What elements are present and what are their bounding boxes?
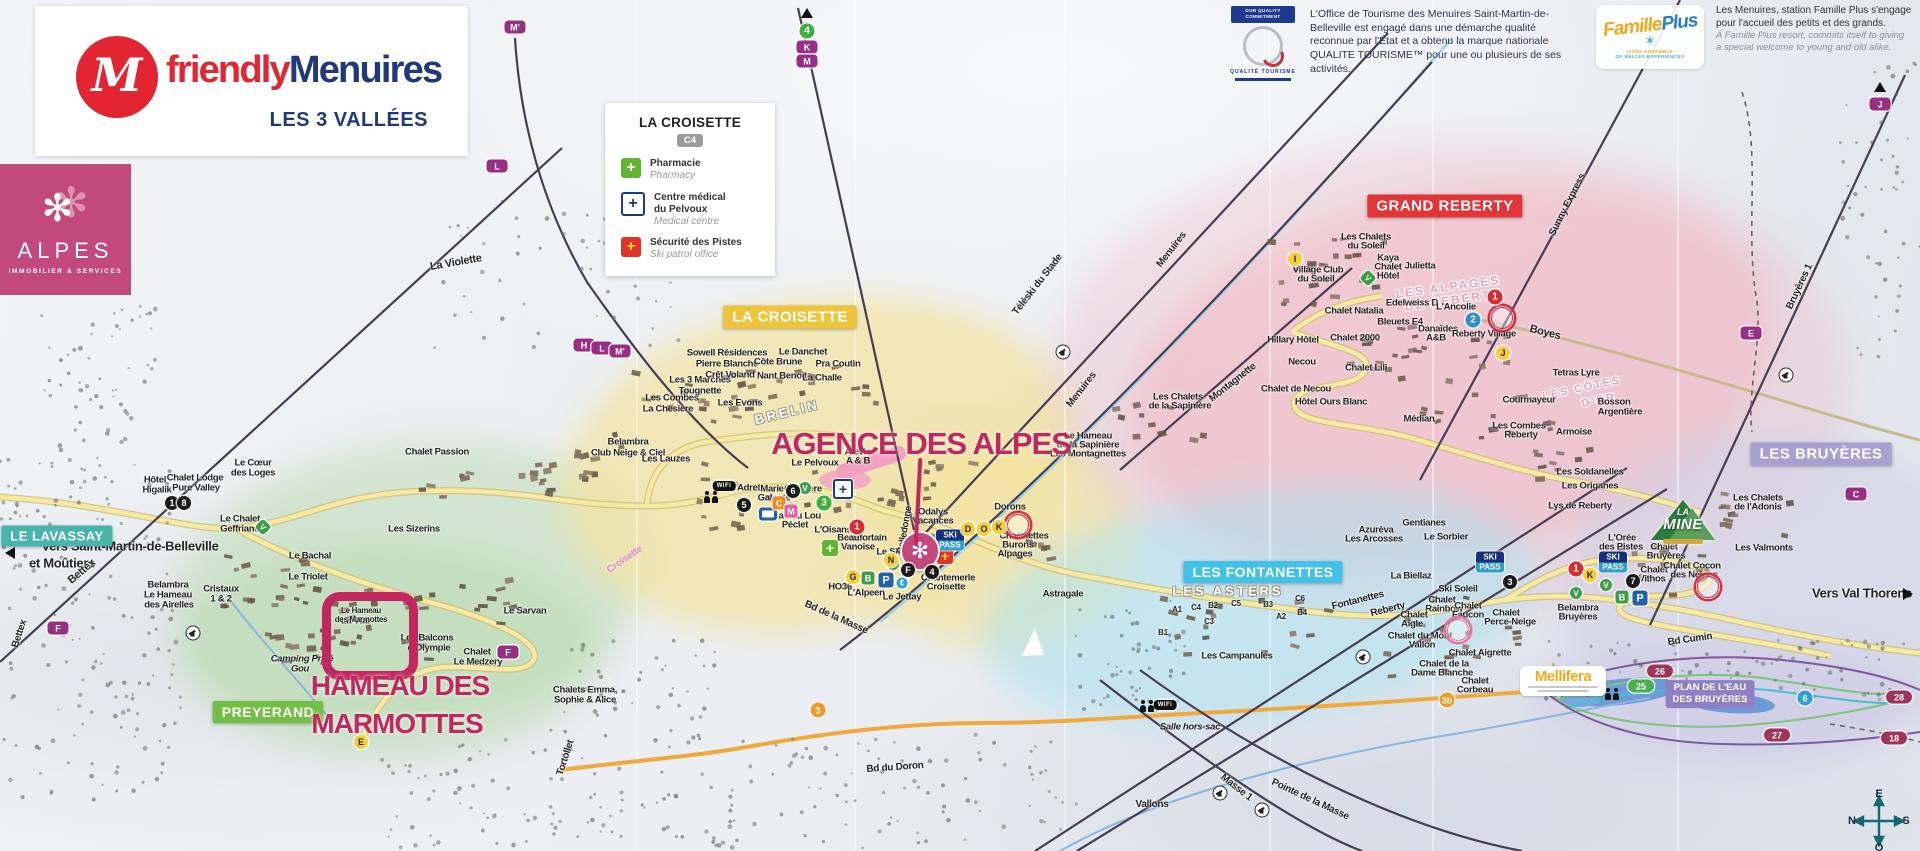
qualite-tourisme-block: OUR QUALITY COMMITMENT QUALITÉ TOURISME …	[1228, 6, 1580, 81]
pharm-icon: +	[822, 540, 838, 556]
map-label: Les Sizerins	[388, 524, 440, 534]
map-label: Tetras Lyre	[1553, 368, 1600, 378]
gond-icon	[1255, 803, 1270, 818]
map-label: Chalet Aigrette	[1449, 648, 1512, 658]
menuires-m-icon: M	[76, 36, 158, 118]
gond-icon	[1356, 650, 1371, 665]
map-label: C4	[1191, 604, 1201, 612]
triu-icon	[801, 8, 813, 18]
map-label: Péclet	[782, 520, 808, 530]
brand-tagline: LES 3 VALLÉES	[270, 109, 428, 132]
map-label: Vanoise	[841, 542, 875, 552]
map-label: des Airelles	[144, 600, 193, 610]
plan-de-leau-label: PLAN DE L'EAU DES BRUYÈRES	[1666, 680, 1755, 708]
map-label: Crêt Voland	[705, 370, 754, 380]
map-label: C6	[1295, 595, 1305, 603]
map-label: Chalet Passion	[405, 447, 469, 457]
tril-icon	[5, 547, 15, 559]
map-label: Vers Val Thorens	[1812, 587, 1912, 600]
map-label: des Loges	[231, 468, 275, 478]
legend-item-label-en: Medical centre	[654, 216, 726, 229]
la-mine-banner	[1663, 539, 1703, 544]
bgrn-icon: B	[862, 572, 875, 585]
callout-hameau-des: HAMEAU DES	[311, 670, 489, 702]
map-label: Hôtel	[1377, 271, 1399, 281]
route-badge-25: 25	[1628, 680, 1654, 693]
map-label: Necou	[1288, 357, 1316, 367]
route-badge-3: 3	[1503, 575, 1517, 589]
map-label: Le Medzery	[454, 657, 503, 667]
medcross-icon: +	[833, 479, 853, 499]
map-label: Bruyères	[1559, 612, 1598, 622]
route-badge-28: 28	[1886, 691, 1912, 704]
vgrn-icon: V	[1570, 587, 1582, 599]
route-badge-2: 2	[1466, 313, 1481, 328]
pharmacy-cross: +	[621, 158, 641, 178]
map-label: Chalet de Necou	[1261, 384, 1331, 394]
map-label: Argentière	[1598, 407, 1643, 417]
trir-icon	[1903, 588, 1913, 600]
route-badge-4: 4	[800, 24, 815, 39]
resort-map-canvas[interactable]: PLAN DE L'EAU DES BRUYÈRES LAMINE Mellif…	[0, 0, 1920, 851]
route-badge-3: 3	[817, 496, 832, 511]
map-label: Geffriand	[220, 524, 260, 534]
lift-badge-m: M	[797, 55, 818, 68]
route-badge-6: 6	[786, 484, 800, 498]
route-badge-1: 1	[1569, 562, 1584, 577]
region-label-grand-reberty: GRAND REBERTY	[1367, 195, 1522, 218]
mellifera-title: Mellifera	[1528, 669, 1598, 684]
skipass-icon: SKIPASS	[1599, 552, 1627, 573]
bgrn-icon: B	[1616, 591, 1629, 604]
lift-badge-m': M'	[505, 21, 526, 34]
legend-item-label-en: Pharmacy	[650, 170, 701, 183]
map-label: Hillary Hôtel	[1267, 335, 1319, 345]
map-label: B1	[1158, 629, 1168, 637]
map-label: Higalik	[142, 485, 171, 495]
map-label: Vallons	[1136, 800, 1169, 810]
map-label: Le Triolet	[288, 572, 327, 582]
qualite-q-icon	[1243, 26, 1283, 66]
park-icon: P	[879, 573, 894, 588]
map-label: Ski Soleil	[1438, 584, 1477, 594]
compass-east: E	[1875, 788, 1882, 800]
gond-icon	[186, 626, 201, 641]
map-label: Les Lauzes	[642, 454, 690, 464]
famille-plus-text-en: A Famille Plus resort, commits itself to…	[1716, 30, 1912, 54]
route-badge-d: D	[961, 522, 975, 536]
map-label: Chalet Lili	[1345, 363, 1387, 373]
compass-west: O	[1875, 842, 1884, 851]
legend-grid-ref: C4	[677, 134, 703, 147]
alpes-title: ALPES	[18, 238, 114, 264]
map-label: Dorons	[994, 502, 1025, 512]
gond-icon	[1779, 368, 1794, 383]
compass-north: N	[1848, 815, 1856, 827]
famille-plus-block: FamillePlus ✶ VIVRE ENSEMBLE DE BELLES E…	[1596, 5, 1916, 69]
map-label: Le Jettay	[883, 592, 922, 602]
plan-de-leau-line1: PLAN DE L'EAU	[1673, 682, 1748, 694]
map-label: Pierre Blanche	[696, 359, 758, 369]
compass-south: S	[1902, 815, 1909, 827]
map-label: de la Sapinière	[1149, 401, 1212, 411]
route-badge-3b: 3b	[1440, 693, 1455, 708]
map-label: Le Bachal	[289, 551, 331, 561]
qualite-commitment-badge: OUR QUALITY COMMITMENT	[1231, 6, 1295, 23]
map-label: Gentianes	[1402, 518, 1445, 528]
lift-badge-k: K	[797, 41, 818, 54]
legend-item-label-fr: Sécurité des Pistes	[650, 237, 742, 249]
route-badge-j: J	[1496, 346, 1510, 360]
map-label: C5	[1231, 600, 1241, 608]
map-label: La Challe	[802, 373, 842, 383]
route-badge-1: 1	[850, 520, 865, 535]
legend-title: LA CROISETTE	[605, 115, 775, 130]
map-label: Les Soldanelles	[1556, 467, 1623, 477]
park-icon: P	[1633, 591, 1648, 606]
map-label: Hôtel Ours Blanc	[1295, 397, 1367, 407]
map-label: La Biellaz	[1391, 571, 1432, 581]
map-label: Les Origanes	[1562, 481, 1619, 491]
map-label: Croisette	[927, 582, 965, 592]
route-badge-n: N	[884, 553, 898, 567]
legend-item: +Centre médical du PelvouxMedical centre	[605, 183, 775, 229]
map-label: Lys de Reberty	[1548, 501, 1612, 511]
gond-icon	[1213, 786, 1228, 801]
map-label: du Soleil	[1298, 274, 1335, 284]
route-badge-6: 6	[1798, 691, 1813, 706]
mpink-icon: M	[785, 505, 798, 518]
map-label: de l'Adonis	[1734, 502, 1782, 512]
legend-item: +Sécurité des PistesSki patrol office	[605, 228, 775, 262]
map-legend: LA CROISETTE C4 +PharmaciePharmacy+Centr…	[605, 103, 775, 276]
map-label: Les Valmonts	[1735, 543, 1793, 553]
map-label: Reberty Village	[1452, 329, 1516, 339]
compass: E N S O	[1850, 792, 1908, 850]
brand-title: friendlyMenuires	[166, 49, 441, 92]
skipass-icon: SKIPASS	[936, 530, 964, 551]
map-label: B3	[1263, 601, 1273, 609]
region-label-les-fontanettes: LES FONTANETTES	[1183, 561, 1342, 583]
map-label: Médian	[1404, 414, 1435, 424]
route-badge-27: 27	[1764, 729, 1790, 742]
map-label: Vallon	[1409, 640, 1435, 650]
route-badge-i: I	[1288, 252, 1302, 266]
map-label: A1	[1172, 606, 1182, 614]
callout-marmottes: MARMOTTES	[311, 708, 482, 740]
map-label: Sophie & Alice	[554, 695, 616, 705]
map-label: Tougnette	[679, 386, 722, 396]
map-label: Armoise	[1556, 427, 1592, 437]
map-label: HO36	[828, 582, 852, 592]
map-label: Côte Brune	[754, 357, 802, 367]
lift-badge-f: F	[498, 646, 519, 659]
route-badge-k: K	[992, 520, 1006, 534]
map-label: Courmayeur	[1503, 395, 1556, 405]
region-label-les-bruy-res: LES BRUYÈRES	[1751, 443, 1892, 466]
region-label-preyerand: PREYERAND	[213, 701, 323, 723]
people-icon	[1605, 688, 1619, 700]
lift-badge-f: F	[48, 622, 69, 635]
ski-patrol-cross: +	[621, 237, 641, 257]
map-label: 1 & 2	[210, 594, 231, 604]
callout-agence-des-alpes: AGENCE DES ALPES	[771, 426, 1071, 462]
map-label: Les Arcosses	[1345, 534, 1403, 544]
route-badge-26: 26	[1647, 665, 1673, 678]
legend-item-label-fr: Pharmacie	[650, 158, 701, 170]
route-badge-18: 18	[1881, 732, 1907, 745]
map-label: A2	[1276, 613, 1286, 621]
map-label: L'Ancolie	[1436, 302, 1476, 312]
wifi-icon: WiFi	[713, 481, 736, 491]
map-label: LES ASTERS	[1172, 585, 1283, 598]
map-label: Astragale	[1043, 589, 1084, 599]
route-badge-f: F	[901, 563, 915, 577]
route-badge-g: G	[846, 570, 860, 584]
map-label: Salle hors-sac	[1160, 722, 1220, 732]
wifi-icon: WiFi	[1154, 700, 1177, 710]
lift-badge-m': M'	[610, 345, 631, 358]
people-icon	[1140, 700, 1154, 712]
map-label: Reberty	[1504, 430, 1537, 440]
map-label: B2	[1208, 602, 1218, 610]
map-label: Le Sorbier	[1424, 532, 1468, 542]
map-label: Chalet Natalia	[1325, 306, 1384, 316]
map-label: B4	[1297, 609, 1307, 617]
qualite-underline	[1235, 78, 1291, 81]
map-label: Vithos	[1638, 574, 1665, 584]
map-label: La Chesière	[643, 404, 694, 414]
map-label: Nant Benoît	[757, 371, 807, 381]
route-badge-o: O	[977, 522, 991, 536]
famille-plus-text-fr: Les Menuires, station Famille Plus s'eng…	[1716, 5, 1912, 30]
triu-icon	[1874, 82, 1886, 92]
la-mine-logo: LAMINE	[1647, 496, 1719, 544]
alpes-subtitle: IMMOBILIER & SERVICES	[9, 268, 123, 275]
route-badge-3: 3	[811, 703, 826, 718]
friendly-menuires-logo-card: M friendlyMenuires LES 3 VALLÉES	[35, 6, 468, 156]
gond-icon	[1056, 345, 1071, 360]
map-label: L'Alpeen	[847, 588, 884, 598]
euro-icon: €	[897, 578, 908, 589]
mellifera-subline2	[1537, 690, 1589, 692]
la-mine-line2: MINE	[1663, 516, 1703, 533]
route-badge-5: 5	[737, 498, 751, 512]
map-label: Les Evons	[718, 398, 763, 408]
mellifera-subline	[1528, 686, 1598, 688]
lift-badge-l: L	[487, 160, 508, 173]
legend-item: +PharmaciePharmacy	[605, 149, 775, 183]
route-badge-k: K	[1583, 568, 1597, 582]
map-label: Pure Valley	[172, 483, 219, 493]
map-label: des Pistes	[1599, 542, 1643, 552]
lift-badge-c: C	[1846, 488, 1867, 501]
map-label: Chalet 2000	[1330, 333, 1380, 343]
qualite-logo-text: QUALITÉ TOURISME	[1230, 69, 1296, 75]
map-label: A&B	[1426, 333, 1446, 343]
map-label: Pra Coutin	[815, 359, 860, 369]
map-label: Les Campanules	[1201, 651, 1272, 661]
map-label: Gou	[291, 664, 309, 674]
route-badge-4: 4	[925, 565, 939, 579]
skipass-icon: SKIPASS	[1476, 552, 1504, 573]
map-label: Belambra	[608, 437, 649, 447]
lift-badge-j: J	[1870, 98, 1891, 111]
map-label: Corbeau	[1457, 685, 1493, 695]
vgrn-icon: V	[799, 482, 811, 494]
region-label-le-lavassay: LE LAVASSAY	[1, 526, 112, 547]
medical-cross: +	[621, 192, 645, 216]
qualite-description: L'Office de Tourisme des Menuires Saint-…	[1310, 8, 1578, 81]
famille-plus-logo: FamillePlus ✶ VIVRE ENSEMBLE DE BELLES E…	[1596, 5, 1704, 69]
famille-plus-sub2: DE BELLES EXPÉRIENCES	[1615, 54, 1684, 59]
route-badge-7: 7	[1626, 574, 1640, 588]
route-badge-8: 8	[177, 496, 191, 510]
region-label-la-croisette: LA CROISETTE	[723, 306, 856, 329]
map-label: Le Sarvan	[504, 606, 547, 616]
legend-item-label-fr: Centre médical du Pelvoux	[654, 192, 726, 216]
lift-badge-e: E	[1741, 327, 1762, 340]
map-label: Aigle	[1401, 619, 1423, 629]
plan-de-leau-line2: DES BRUYÈRES	[1673, 694, 1748, 706]
legend-item-label-en: Ski patrol office	[650, 249, 742, 262]
alpes-flower-icon: ✻✻	[36, 184, 96, 236]
map-label: du Soleil	[1348, 241, 1385, 251]
map-label: Bleuets E4	[1377, 317, 1423, 327]
map-label: C3	[1204, 618, 1214, 626]
map-label: Le Danchet	[779, 347, 827, 357]
map-label: Alpages	[998, 549, 1033, 559]
map-label: Edelweiss D	[1386, 298, 1438, 308]
hameau-highlight-box	[322, 592, 418, 680]
qualite-tourisme-logo: OUR QUALITY COMMITMENT QUALITÉ TOURISME	[1228, 6, 1298, 81]
mellifera-logo: Mellifera	[1520, 666, 1606, 696]
alpes-immobilier-logo: ✻✻ ALPES IMMOBILIER & SERVICES	[0, 164, 131, 295]
map-label: Julietta	[1405, 261, 1436, 271]
vgrn-icon: V	[1600, 579, 1612, 591]
people-icon	[704, 491, 718, 503]
map-label: Perce-Neige	[1484, 617, 1536, 627]
route-badge-1: 1	[1488, 290, 1503, 305]
